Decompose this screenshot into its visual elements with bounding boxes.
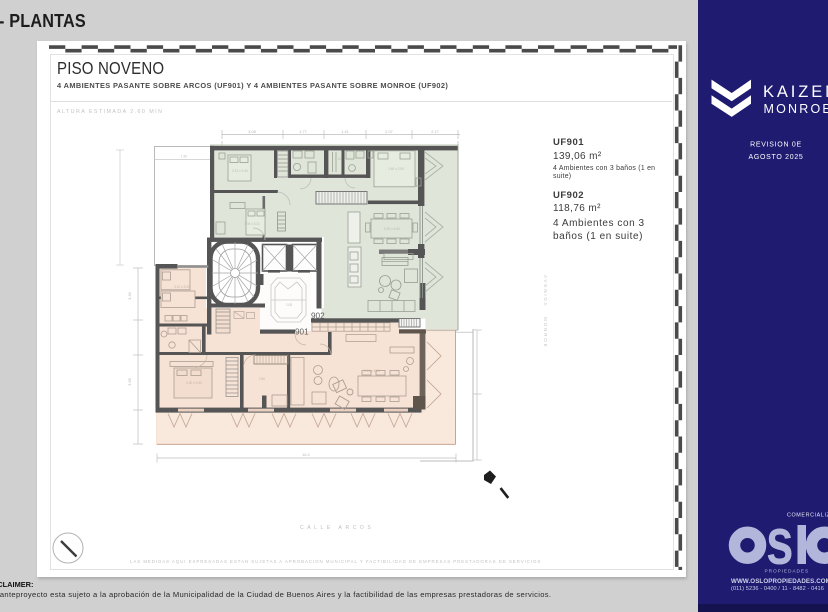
svg-text:3.95: 3.95 xyxy=(128,378,132,385)
svg-text:s: s xyxy=(766,505,794,579)
svg-text:WWW.OSLOPROPIEDADES.COM.AR: WWW.OSLOPROPIEDADES.COM.AR xyxy=(731,578,828,585)
svg-text:1.50: 1.50 xyxy=(181,155,187,159)
svg-text:902: 902 xyxy=(311,312,325,321)
svg-text:2.80: 2.80 xyxy=(259,377,265,381)
svg-text:1.41: 1.41 xyxy=(341,130,348,134)
svg-text:901: 901 xyxy=(295,328,309,337)
svg-text:2.08: 2.08 xyxy=(286,303,292,307)
svg-text:2.17: 2.17 xyxy=(431,130,438,134)
svg-text:CALLE ARCOS: CALLE ARCOS xyxy=(300,525,374,531)
svg-text:3.05 x 3.32: 3.05 x 3.32 xyxy=(244,222,260,226)
svg-text:2.07: 2.07 xyxy=(385,130,392,134)
svg-text:3.10 x 3.25: 3.10 x 3.25 xyxy=(174,285,190,289)
svg-text:5.10 x 4.20: 5.10 x 4.20 xyxy=(364,369,380,373)
svg-text:3.10 x 3.40: 3.10 x 3.40 xyxy=(232,169,248,173)
svg-text:3.08: 3.08 xyxy=(248,130,255,134)
svg-text:AGOSTO 2025: AGOSTO 2025 xyxy=(748,154,803,161)
svg-text:AVENIDA: AVENIDA xyxy=(543,275,548,307)
svg-text:1.77: 1.77 xyxy=(299,130,306,134)
svg-text:5.20 x 6.80: 5.20 x 6.80 xyxy=(384,227,400,231)
svg-text:REVISION 0E: REVISION 0E xyxy=(750,142,802,149)
svg-text:2.10: 2.10 xyxy=(335,157,341,161)
svg-text:LAS MEDIDAS AQUI EXPRESADAS ES: LAS MEDIDAS AQUI EXPRESADAS ESTAN SUJETA… xyxy=(130,559,541,564)
svg-text:MONROE: MONROE xyxy=(543,317,548,348)
svg-text:16.2: 16.2 xyxy=(302,453,309,457)
svg-text:MONROE: MONROE xyxy=(764,102,828,116)
svg-text:3.30: 3.30 xyxy=(128,292,132,299)
svg-text:3.60 x 3.95: 3.60 x 3.95 xyxy=(388,167,404,171)
svg-text:PROPIEDADES: PROPIEDADES xyxy=(765,569,810,575)
svg-text:3.30 x 3.60: 3.30 x 3.60 xyxy=(186,381,202,385)
svg-text:KAIZEN: KAIZEN xyxy=(763,83,828,101)
svg-text:(011) 5236 - 0400 / 11 - 8482: (011) 5236 - 0400 / 11 - 8482 - 0416 xyxy=(731,586,824,592)
